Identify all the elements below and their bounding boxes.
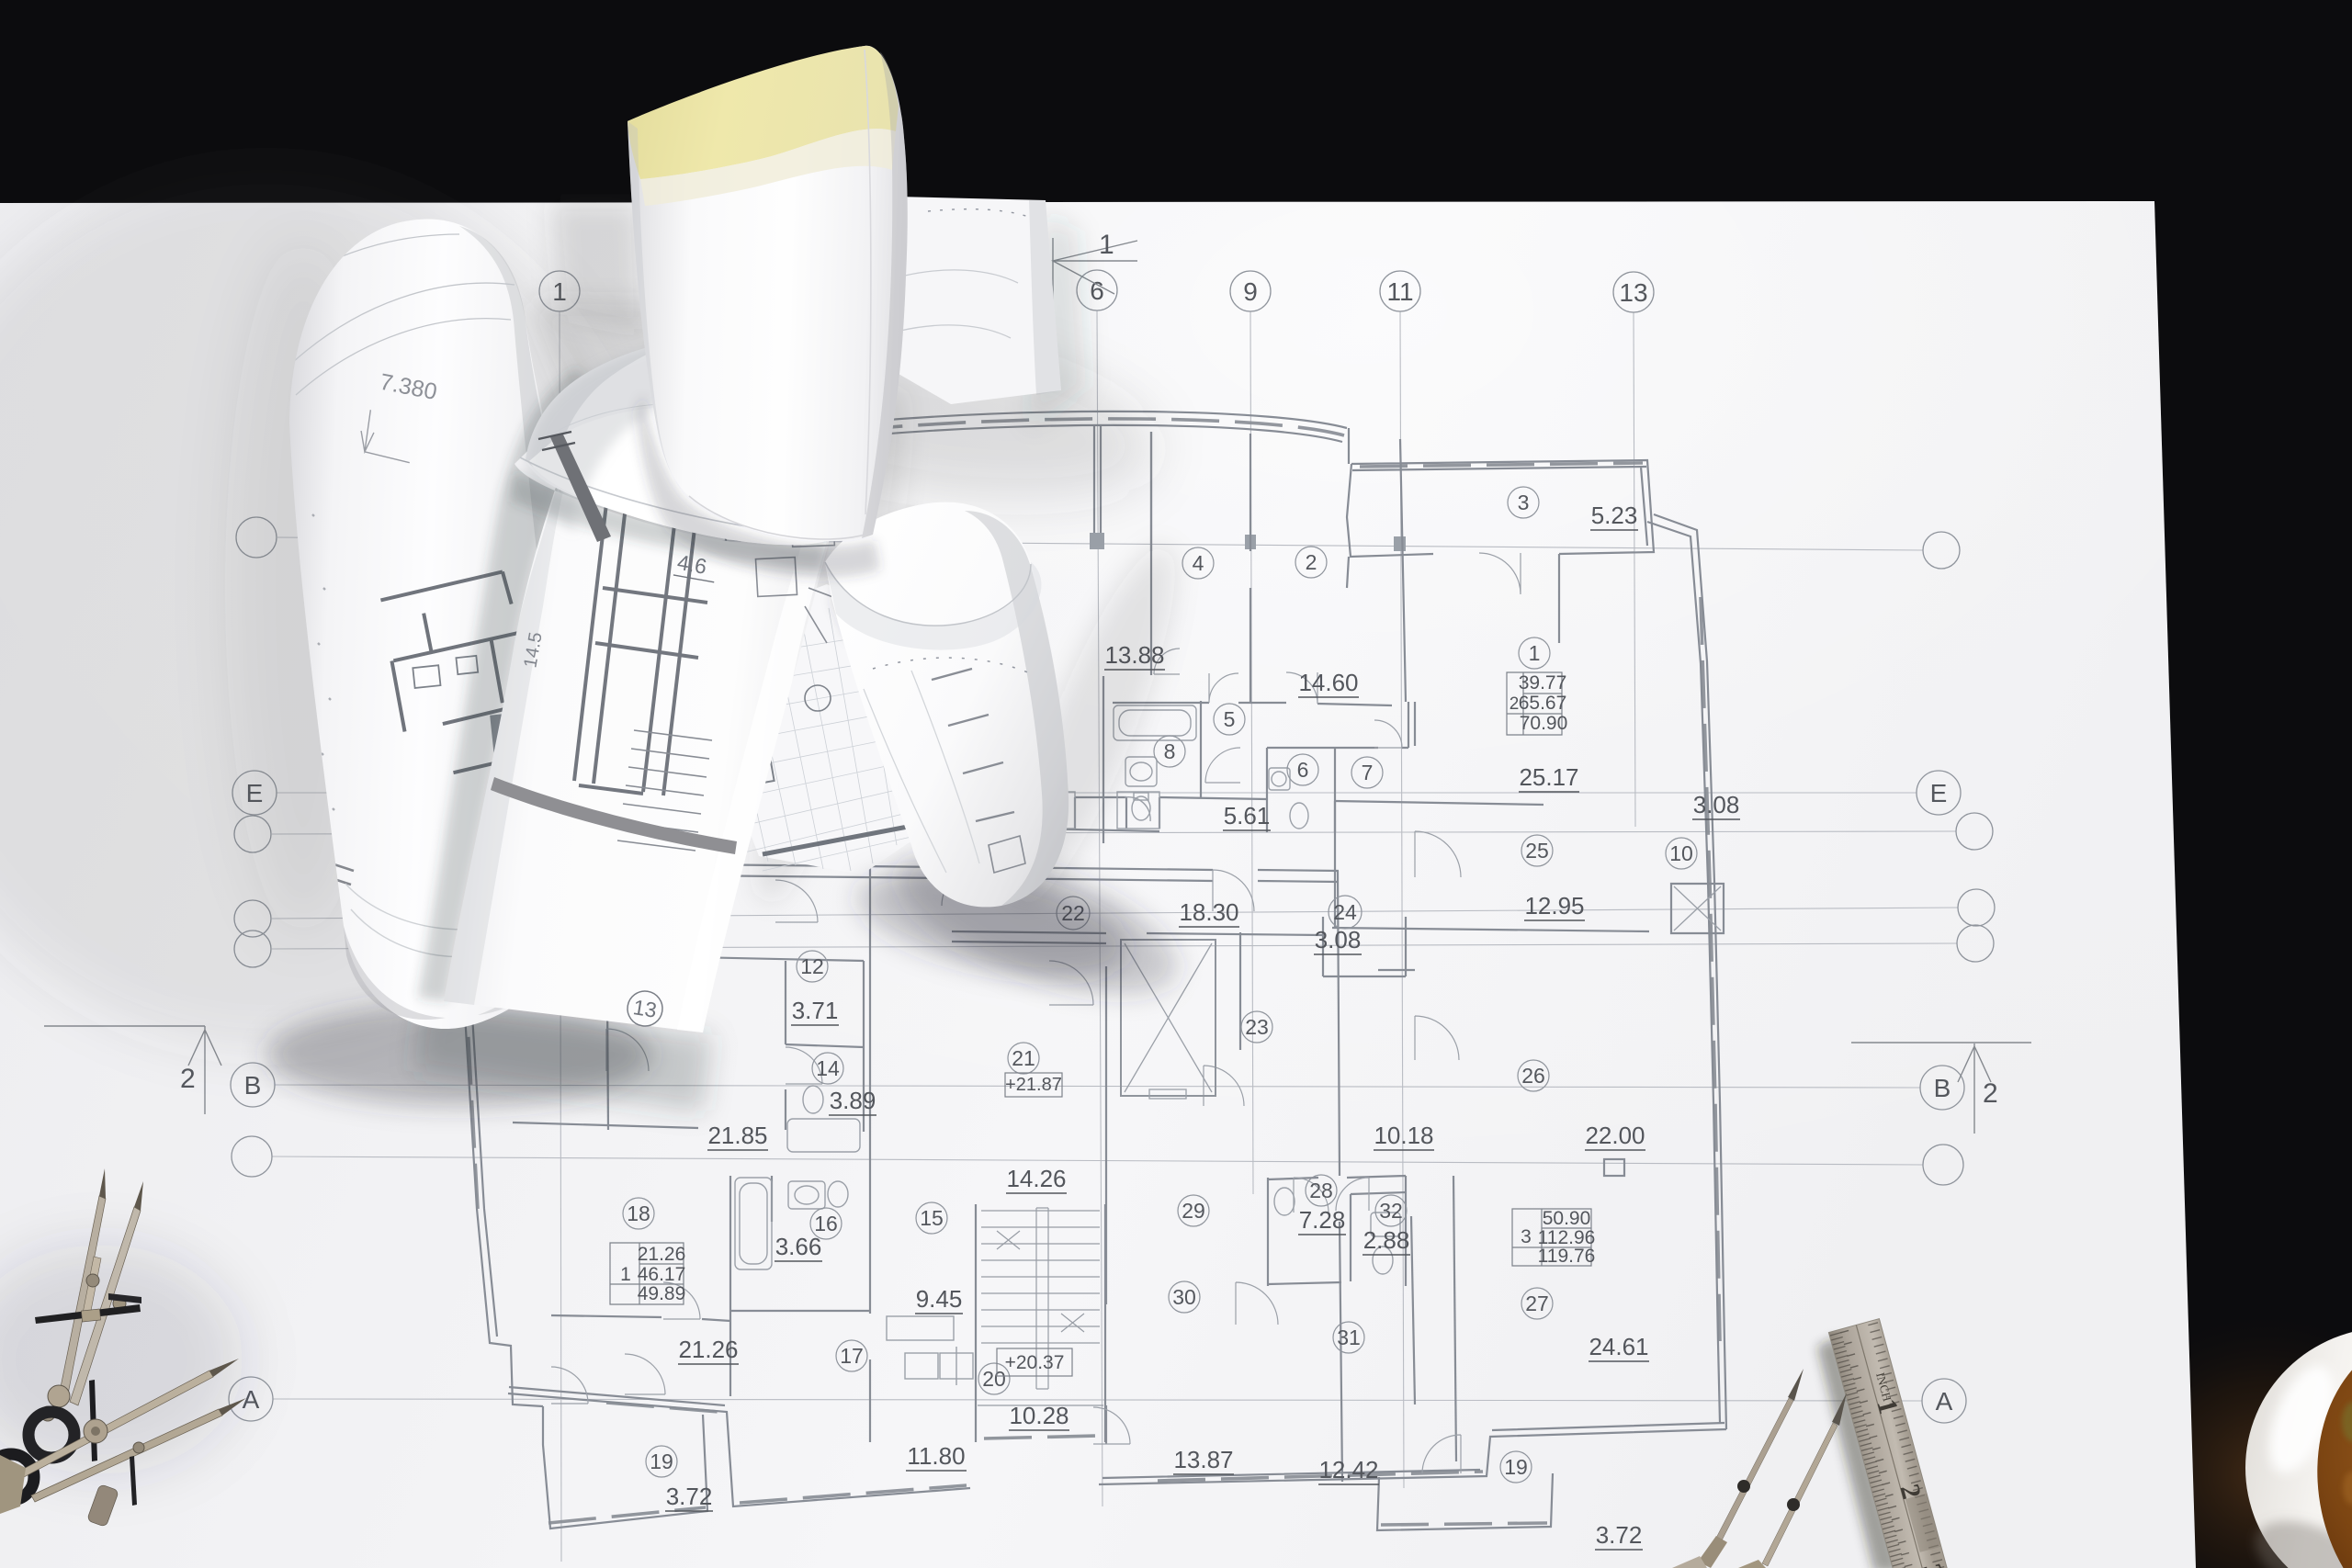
svg-text:18: 18 bbox=[627, 1201, 650, 1225]
svg-text:27: 27 bbox=[1525, 1292, 1549, 1315]
svg-text:3: 3 bbox=[1521, 1226, 1532, 1247]
svg-text:4.6: 4.6 bbox=[675, 550, 708, 579]
svg-text:10.18: 10.18 bbox=[1374, 1122, 1433, 1149]
svg-text:13: 13 bbox=[631, 995, 658, 1022]
svg-text:7: 7 bbox=[1362, 761, 1374, 784]
svg-text:A: A bbox=[243, 1385, 260, 1414]
svg-text:5.23: 5.23 bbox=[1591, 502, 1638, 529]
svg-text:32: 32 bbox=[1379, 1199, 1403, 1223]
svg-text:24: 24 bbox=[1333, 900, 1357, 924]
svg-text:2: 2 bbox=[1983, 1078, 1998, 1109]
svg-text:3.08: 3.08 bbox=[1693, 791, 1740, 818]
svg-text:31: 31 bbox=[1337, 1325, 1361, 1349]
svg-text:5.61: 5.61 bbox=[1224, 802, 1271, 829]
svg-text:50.90: 50.90 bbox=[1543, 1208, 1591, 1229]
svg-text:2: 2 bbox=[1510, 694, 1520, 714]
svg-text:29: 29 bbox=[1182, 1199, 1205, 1223]
svg-text:14.26: 14.26 bbox=[1006, 1165, 1066, 1192]
svg-text:12.42: 12.42 bbox=[1318, 1456, 1378, 1483]
svg-text:70.90: 70.90 bbox=[1520, 713, 1568, 734]
svg-text:10: 10 bbox=[1669, 841, 1693, 865]
svg-text:28: 28 bbox=[1309, 1179, 1333, 1202]
svg-text:5: 5 bbox=[1224, 707, 1236, 731]
svg-text:9: 9 bbox=[1243, 277, 1258, 306]
svg-text:22.00: 22.00 bbox=[1585, 1122, 1645, 1149]
svg-text:13: 13 bbox=[1619, 278, 1647, 307]
svg-text:49.89: 49.89 bbox=[638, 1283, 686, 1304]
svg-text:3.72: 3.72 bbox=[666, 1483, 713, 1510]
svg-text:6: 6 bbox=[1297, 758, 1309, 782]
svg-text:E: E bbox=[1930, 779, 1948, 807]
svg-text:46.17: 46.17 bbox=[638, 1264, 686, 1285]
svg-text:4: 4 bbox=[1193, 551, 1204, 575]
svg-text:B: B bbox=[244, 1071, 262, 1100]
svg-text:19: 19 bbox=[1504, 1455, 1528, 1479]
svg-text:26: 26 bbox=[1521, 1064, 1545, 1088]
svg-text:25.17: 25.17 bbox=[1519, 763, 1578, 791]
svg-text:8: 8 bbox=[1164, 739, 1176, 763]
svg-text:65.67: 65.67 bbox=[1519, 693, 1567, 714]
svg-text:11: 11 bbox=[1386, 277, 1413, 306]
svg-text:+21.87: +21.87 bbox=[1005, 1075, 1062, 1095]
svg-text:39.77: 39.77 bbox=[1519, 672, 1567, 694]
svg-text:23: 23 bbox=[1245, 1015, 1269, 1039]
svg-text:7.28: 7.28 bbox=[1299, 1206, 1346, 1234]
svg-text:30: 30 bbox=[1172, 1285, 1196, 1309]
svg-text:17: 17 bbox=[840, 1344, 864, 1368]
svg-text:1: 1 bbox=[620, 1264, 631, 1285]
svg-text:21: 21 bbox=[1012, 1046, 1035, 1070]
svg-text:6: 6 bbox=[1090, 276, 1104, 305]
svg-text:9.45: 9.45 bbox=[916, 1285, 963, 1313]
svg-text:14.60: 14.60 bbox=[1298, 669, 1358, 696]
svg-text:25: 25 bbox=[1525, 839, 1549, 863]
svg-text:11.80: 11.80 bbox=[907, 1442, 965, 1470]
svg-text:2: 2 bbox=[1306, 550, 1317, 574]
svg-text:2: 2 bbox=[180, 1064, 196, 1094]
svg-text:21.26: 21.26 bbox=[638, 1244, 686, 1265]
svg-text:21.85: 21.85 bbox=[707, 1122, 767, 1149]
svg-text:119.76: 119.76 bbox=[1538, 1246, 1596, 1267]
svg-text:3: 3 bbox=[1518, 491, 1530, 514]
svg-text:24.61: 24.61 bbox=[1589, 1333, 1648, 1360]
svg-text:3.72: 3.72 bbox=[1596, 1521, 1643, 1549]
svg-text:1: 1 bbox=[1099, 230, 1114, 260]
svg-text:2.88: 2.88 bbox=[1363, 1226, 1410, 1254]
svg-text:A: A bbox=[1936, 1387, 1953, 1416]
svg-text:18.30: 18.30 bbox=[1179, 898, 1238, 926]
svg-text:B: B bbox=[1934, 1074, 1951, 1102]
svg-text:21.26: 21.26 bbox=[678, 1336, 738, 1363]
svg-text:3.89: 3.89 bbox=[830, 1087, 876, 1114]
svg-text:19: 19 bbox=[650, 1450, 673, 1473]
svg-text:14: 14 bbox=[816, 1056, 840, 1080]
svg-text:15: 15 bbox=[920, 1206, 944, 1230]
svg-text:20: 20 bbox=[982, 1367, 1006, 1391]
svg-text:12: 12 bbox=[800, 954, 824, 978]
svg-text:+20.37: +20.37 bbox=[1005, 1352, 1065, 1373]
svg-text:1: 1 bbox=[1529, 641, 1541, 665]
svg-text:13.87: 13.87 bbox=[1173, 1446, 1233, 1473]
svg-text:10.28: 10.28 bbox=[1009, 1402, 1069, 1429]
svg-text:12.95: 12.95 bbox=[1524, 892, 1584, 919]
svg-text:3.66: 3.66 bbox=[775, 1233, 822, 1260]
svg-text:3.08: 3.08 bbox=[1315, 926, 1362, 953]
svg-text:3.71: 3.71 bbox=[792, 997, 839, 1024]
